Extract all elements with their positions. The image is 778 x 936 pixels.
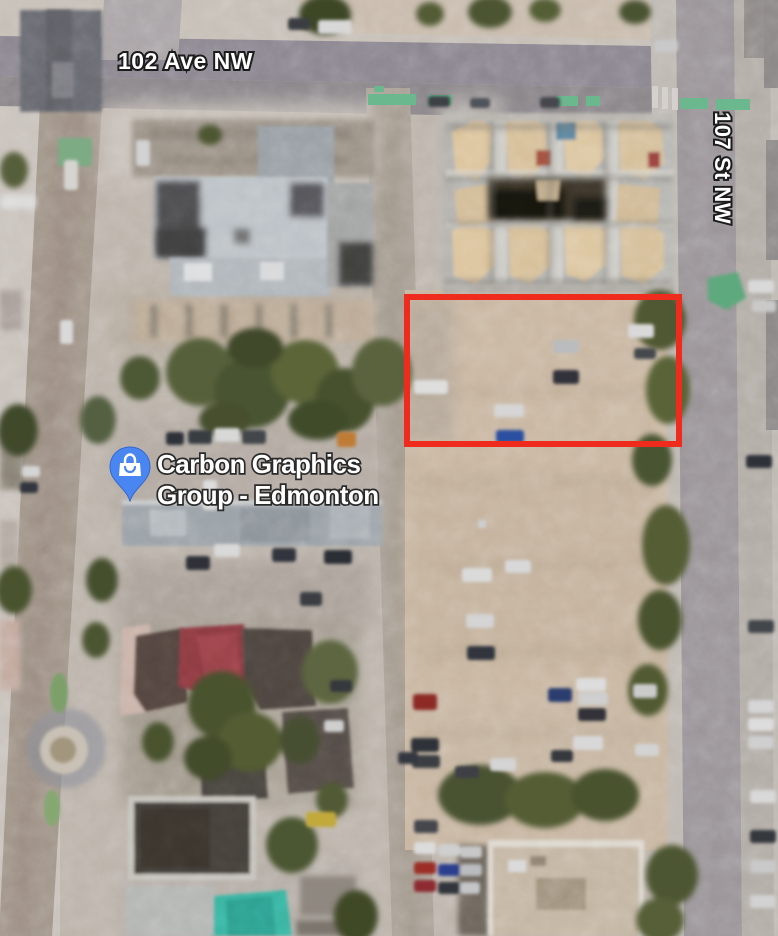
svg-text:Carbon Graphics: Carbon Graphics — [157, 449, 360, 479]
svg-text:102 Ave NW: 102 Ave NW — [118, 48, 253, 74]
svg-text:107 St NW: 107 St NW — [710, 112, 735, 224]
svg-text:Group - Edmonton: Group - Edmonton — [157, 480, 379, 510]
